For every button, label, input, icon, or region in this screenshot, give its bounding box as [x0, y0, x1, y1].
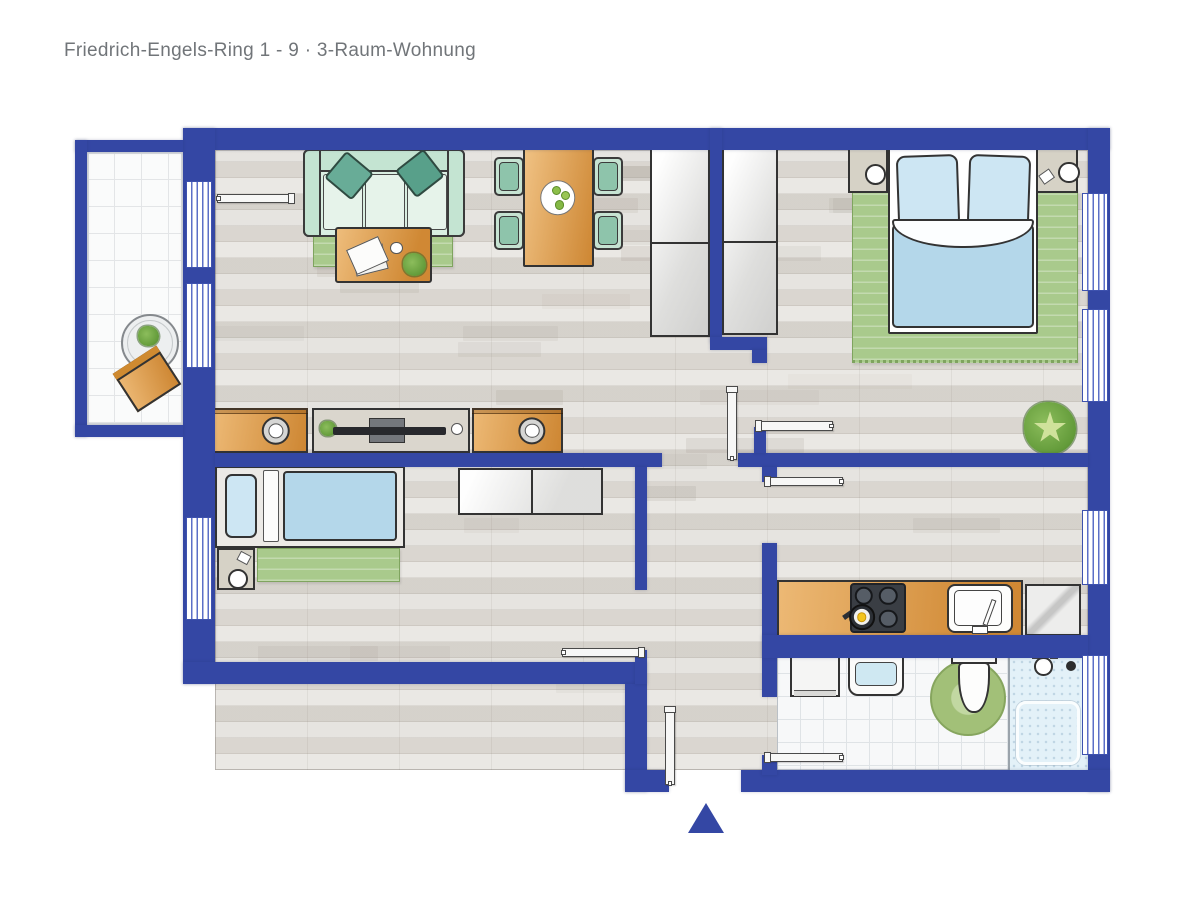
cabinet-edge	[472, 408, 563, 414]
chair-seat	[499, 162, 519, 190]
table-plant	[403, 253, 426, 276]
window-kitchen	[1082, 510, 1108, 585]
tv-cabinet-right	[472, 408, 563, 453]
fridge	[1025, 584, 1081, 636]
wall-lb-foot	[710, 337, 767, 350]
door-balcony	[217, 194, 293, 203]
kitchen-sink	[947, 584, 1013, 633]
wall-bedroom-hall	[738, 453, 1088, 467]
bath-sink-basin	[855, 662, 896, 686]
window-living-2	[186, 283, 212, 368]
floor-main-plank	[542, 294, 630, 309]
door-bedroom-latch	[829, 424, 834, 429]
tv-cabinet-left	[213, 408, 308, 453]
duvet	[283, 471, 397, 542]
dining-chair-bottom-left	[494, 211, 524, 250]
sink-tap	[972, 626, 988, 634]
speaker-cone	[525, 423, 540, 438]
window-bedroom-2	[1082, 309, 1108, 402]
door-entrance	[665, 708, 675, 785]
toilet	[950, 650, 998, 714]
egg-yolk	[857, 612, 867, 622]
door-balcony-hinge	[288, 193, 295, 204]
floor-main-plank	[788, 374, 913, 389]
dining-chair-bottom-right	[593, 211, 623, 250]
window-living-1	[186, 181, 212, 268]
sink-basin	[954, 590, 1003, 626]
door-bathroom-hinge	[764, 752, 771, 763]
door-kids-latch	[561, 650, 566, 654]
wall-kitchen-left	[762, 543, 777, 697]
door-entrance-hinge	[664, 706, 676, 713]
fruit	[561, 191, 570, 200]
sheet-band	[263, 470, 279, 542]
wall-balcony-bottom	[75, 425, 183, 437]
floor-main-plank	[215, 326, 304, 341]
wall-living-bedroom	[710, 128, 722, 343]
shower	[1008, 650, 1088, 772]
wall-bottom-right	[741, 770, 1110, 792]
wardrobe-door-split	[650, 242, 710, 244]
nightstand-left	[848, 148, 888, 193]
floor-main-plank	[913, 518, 1000, 533]
dining-chair-top-right	[593, 157, 623, 196]
window-bedroom-1	[1082, 193, 1108, 291]
kids-dresser	[458, 468, 603, 515]
shower-faucet	[1034, 657, 1052, 675]
dining-chair-top-left	[494, 157, 524, 196]
sofa-cushion	[365, 174, 405, 230]
pillow	[966, 154, 1030, 229]
remote-dot	[451, 423, 463, 435]
door-kitchen-hinge	[764, 476, 771, 487]
floor-plan	[0, 0, 1200, 900]
stove	[850, 583, 906, 633]
lamp	[1058, 162, 1080, 184]
wall-balcony-top	[75, 140, 183, 152]
double-bed	[888, 148, 1038, 334]
chair-seat	[598, 216, 618, 244]
wall-kitchen-bath	[762, 635, 1088, 658]
dining-table	[523, 148, 594, 267]
lamp	[228, 569, 248, 589]
wall-kids-bottom	[183, 662, 647, 684]
entrance-arrow	[688, 803, 724, 833]
dresser-door-split	[531, 468, 533, 515]
wardrobe-bedroom	[722, 147, 778, 335]
fruit	[555, 200, 564, 209]
cabinet-edge	[213, 408, 308, 414]
chair-seat	[598, 162, 618, 190]
door-bedroom	[757, 421, 833, 431]
bedroom-plant	[1024, 402, 1076, 454]
floor-main-plank	[350, 646, 450, 661]
door-bathroom-latch	[839, 755, 844, 759]
sofa-armrest-left	[303, 149, 321, 237]
fridge-body	[1025, 584, 1081, 636]
floor-main-plank	[458, 342, 541, 357]
door-hall-hinge	[726, 386, 738, 393]
window-kids	[186, 517, 212, 620]
nightstand-right	[1036, 148, 1078, 193]
washer-panel	[794, 690, 836, 696]
sofa-armrest-right	[447, 149, 465, 237]
wall-balcony-left	[75, 140, 87, 437]
door-balcony-latch	[216, 196, 221, 200]
wall-top	[183, 128, 1110, 150]
pillow	[896, 154, 960, 229]
tv-screen	[333, 427, 447, 434]
toilet-bowl	[958, 662, 991, 713]
cup	[390, 242, 403, 255]
door-hall-latch	[730, 456, 735, 461]
wall-lb-tab	[752, 350, 767, 363]
floor-main-plank	[464, 518, 519, 533]
door-kitchen	[766, 477, 843, 486]
door-kids-hinge	[638, 647, 645, 658]
wardrobe-living	[650, 147, 710, 337]
wall-bottom-left	[625, 770, 669, 792]
kids-rug	[257, 548, 400, 582]
floor-main-plank	[686, 438, 804, 453]
floor-main-plank	[496, 390, 563, 405]
coffee-table	[335, 227, 432, 283]
door-entrance-latch	[668, 781, 673, 786]
door-bathroom	[766, 753, 843, 762]
door-kitchen-latch	[839, 479, 844, 483]
chair-seat	[499, 216, 519, 244]
kids-bed	[215, 466, 405, 548]
pillow	[225, 474, 257, 538]
window-bathroom	[1082, 655, 1108, 755]
door-kids	[562, 648, 643, 657]
kids-nightstand	[217, 548, 255, 590]
wall-living-kids	[215, 453, 662, 467]
wall-kids-right-upper	[635, 467, 647, 590]
tv-board	[312, 408, 470, 453]
wardrobe-door-split	[722, 241, 778, 243]
door-bedroom-hinge	[755, 420, 762, 432]
floor-main-plank	[463, 326, 558, 341]
lamp	[865, 164, 886, 185]
sofa	[303, 149, 465, 237]
door-hall	[727, 388, 737, 460]
floor-main-plank	[700, 390, 819, 405]
tub-rim	[1016, 701, 1080, 764]
